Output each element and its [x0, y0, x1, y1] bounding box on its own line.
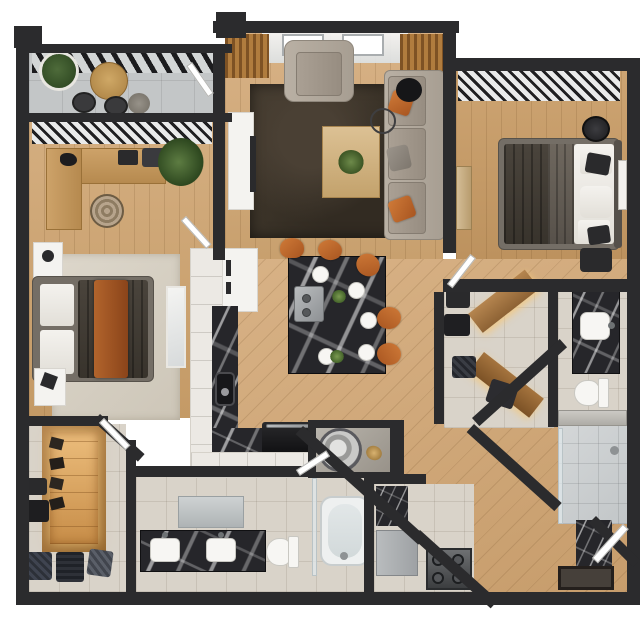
- floor-lamp-shade: [396, 78, 422, 102]
- balcony-chair: [72, 92, 96, 113]
- entry-doormat: [558, 566, 614, 590]
- wall-left-outer: [16, 44, 29, 604]
- tv-screen: [250, 136, 256, 192]
- balcony-stool: [128, 93, 150, 114]
- bedroom1-throw-blanket: [94, 280, 128, 378]
- bathroom2-vessel-sink: [580, 312, 610, 340]
- floor-plan-canvas: [0, 0, 640, 640]
- bathroom2-faucet: [608, 322, 615, 329]
- bathroom1-sink-2: [206, 538, 236, 562]
- wall-living-top: [213, 21, 459, 33]
- cooktop-knob: [302, 294, 311, 303]
- island-cooktop: [294, 286, 324, 322]
- bedroom2-pillow-2: [580, 186, 612, 218]
- armchair-cushion: [296, 52, 342, 96]
- dining-chair: [280, 238, 304, 258]
- place-setting: [312, 266, 329, 283]
- bedroom1-plant: [158, 138, 204, 186]
- bathroom1-toilet-tank: [288, 536, 299, 568]
- place-setting-2: [348, 282, 365, 299]
- wall-utility-left: [364, 474, 374, 598]
- wall-right-outer: [627, 58, 640, 604]
- hanging-clothes-3: [49, 477, 64, 490]
- bedroom2-bench: [456, 166, 472, 230]
- sink-faucet: [162, 532, 168, 538]
- wall-bedroom2-bottom: [443, 279, 640, 292]
- wall-bedroom2-top: [443, 58, 640, 71]
- floor-lamp-ring: [370, 108, 396, 134]
- desk-lamp: [60, 153, 77, 166]
- bathroom2-toilet-bowl: [574, 380, 600, 406]
- bathroom1-mirror: [178, 496, 244, 528]
- storage-basket-2: [56, 552, 84, 582]
- kitchen-fridge-cabinet: [222, 248, 258, 312]
- shower-floor: [558, 424, 627, 524]
- wood-curtain-left: [225, 34, 269, 78]
- desk-chair: [90, 194, 124, 228]
- wall-entrycloset-left: [434, 292, 444, 424]
- fridge-handle-2: [226, 282, 231, 294]
- wall-core-vertical: [213, 44, 225, 260]
- balcony-table: [90, 62, 128, 100]
- place-setting-3: [360, 312, 377, 329]
- bedroom2-duvet-gray: [548, 144, 574, 244]
- wall-balcony-divider: [16, 113, 232, 122]
- wall-bedroom2-left: [443, 21, 456, 253]
- nightstand-lamp: [42, 250, 54, 262]
- wall-bathroom1-top: [126, 466, 316, 477]
- bedroom1-leaning-mirror: [166, 286, 186, 368]
- sofa-gray-pillow: [386, 144, 413, 172]
- fridge-handle: [226, 260, 231, 276]
- bathtub-faucet: [340, 552, 348, 560]
- wall-utility-top: [364, 474, 426, 484]
- coffee-table-plant: [338, 150, 364, 174]
- bathroom1-sink: [150, 538, 180, 562]
- range-burner-3: [432, 572, 444, 584]
- entry-closet-box-3: [452, 356, 476, 378]
- kitchen-oven-trim: [266, 424, 314, 428]
- bathtub-basin: [328, 504, 362, 558]
- island-greenery: [332, 290, 346, 303]
- wall-balcony-top: [16, 44, 232, 53]
- cooktop-knob-2: [302, 308, 311, 317]
- desk-monitor: [118, 150, 138, 165]
- bedroom2-round-nightstand: [582, 116, 610, 142]
- wall-closet1-right: [126, 440, 136, 600]
- kitchen-faucet: [221, 388, 229, 396]
- bathtub-glass-panel: [312, 478, 317, 576]
- shower-head: [610, 446, 619, 455]
- bedroom2-accent-pillow: [584, 152, 611, 176]
- balcony-plant: [42, 54, 76, 88]
- storage-basket: [26, 552, 52, 580]
- shower-glass-wall: [558, 428, 563, 524]
- bedroom2-nightstand: [580, 248, 612, 272]
- bathroom2-toilet-tank: [598, 378, 609, 408]
- bedroom1-pillow: [40, 284, 74, 326]
- wall-bottom-outer: [16, 592, 640, 605]
- entry-closet-box-2: [444, 314, 470, 336]
- bedroom2-wall-art: [618, 160, 627, 210]
- shower-bench-counter: [558, 410, 627, 426]
- storage-basket-3: [86, 548, 113, 577]
- sink-faucet-2: [218, 532, 224, 538]
- bedroom2-window-blinds: [458, 71, 620, 101]
- island-greenery-2: [330, 350, 344, 363]
- place-setting-4: [358, 344, 375, 361]
- bedroom2-accent-pillow-2: [587, 225, 611, 246]
